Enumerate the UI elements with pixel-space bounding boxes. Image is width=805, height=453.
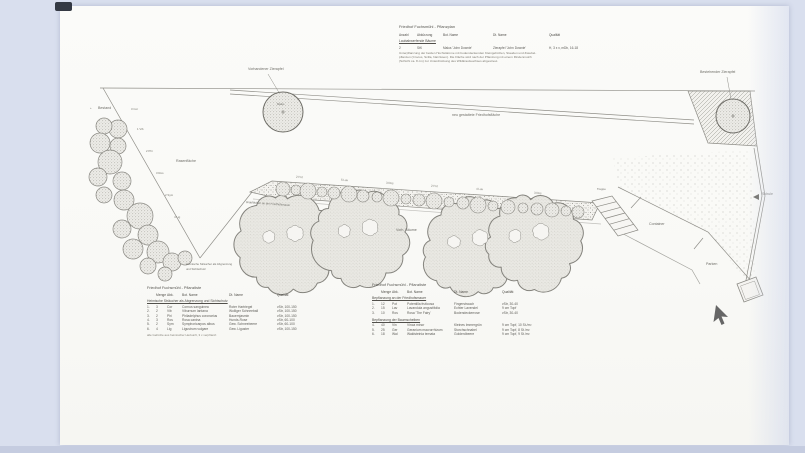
header-plant-row: 2 StK Malus 'John Downie' Zierapfel 'Joh…: [399, 46, 669, 50]
cell-qual: vStr, 30-40: [502, 311, 548, 315]
boundary-shrub-row: [89, 118, 192, 281]
cell-nr: 3.: [372, 311, 379, 315]
label-rasenflaeche: Rasenfläche: [176, 159, 196, 163]
plant-tick: 1 Vib: [137, 127, 144, 131]
plant-tick: 3 Ros: [386, 181, 394, 185]
col-dt: Dt. Name: [229, 293, 275, 297]
cell-qual: vStr, 100-150: [277, 327, 323, 331]
plant-rows: 4.40VinVinca minorKleines Immergrün9 cm …: [372, 323, 540, 336]
plant-row: 3.10RosRosa 'The Fairy'BodendeckerrosevS…: [372, 311, 540, 315]
col-anzahl: Anzahl: [399, 33, 413, 37]
zierapfel-trees: [263, 92, 750, 133]
plant-tick: 2 Phi: [146, 149, 153, 153]
plant-rows: 1.12PotPotentilla fruticosaFingerstrauch…: [372, 302, 540, 315]
col-dt: Dt. Name: [454, 290, 500, 294]
table-columns: Menge Abk. Bot. Name Dt. Name Qualität: [372, 290, 540, 294]
col-qualitaet: Qualität: [549, 33, 627, 37]
cell-bot: Malus 'John Downie': [443, 46, 489, 50]
planting-notes: Unterpflanzung der beiden Hochstämme mit…: [399, 52, 667, 64]
cell-qual: 9 cm Topf, 9 St./m²: [502, 332, 548, 336]
cell-bot: Ligustrum vulgare: [182, 327, 227, 331]
cell-dt: Golderdbeere: [454, 332, 500, 336]
col-menge: Menge: [381, 290, 390, 294]
label-container: Container: [649, 222, 665, 226]
cell-menge: 10: [381, 311, 390, 315]
section-title: Bepflanzung an der Friedhofsmauer: [372, 296, 540, 300]
label-vorhandener-zierapfel: Vorhandener Zierapfel: [248, 67, 284, 71]
plant-tick: 5 Lav: [341, 178, 348, 182]
cell-bot: Waldsteinia ternata: [407, 332, 452, 336]
plant-tick: 3 Cor: [131, 107, 138, 111]
section-title: Heimische Sträucher als Abgrenzung und S…: [147, 299, 319, 303]
slope-planting-area: [612, 150, 758, 296]
col-qual: Qualität: [277, 293, 323, 297]
image-viewer-canvas: + Bestand Rasenfläche Vorhandener Zierap…: [0, 0, 805, 453]
col-bot-name: Bot. Name: [443, 33, 489, 37]
label-treppe: Treppe: [597, 188, 606, 191]
cell-abk: Lig: [167, 327, 180, 331]
label-parken: Parken: [706, 262, 717, 266]
col-qual: Qualität: [502, 290, 548, 294]
cell-dt: Zierapfel 'John Downie': [493, 46, 545, 50]
col-dt-name: Dt. Name: [493, 33, 545, 37]
cell-menge: 18: [381, 332, 390, 336]
arrow-mark: [714, 305, 729, 325]
cell-nr: 6.: [372, 332, 379, 336]
plan-title: Friedhof Fuchsmühl - Pflanzplan: [399, 24, 669, 29]
label-vorh-baeume: Vorh. Bäume: [396, 228, 417, 232]
plant-table-left: Friedhof Fuchsmühl - Pflanzliste Menge A…: [147, 286, 319, 337]
header-section-title: Laubabwerfende Bäume: [399, 39, 669, 43]
stairs: [592, 196, 638, 236]
plant-tick: 3 Ros: [156, 171, 164, 175]
col-bot: Bot. Name: [407, 290, 452, 294]
note-line: (Schicht ca. 8 cm) zur Unterdrückung des…: [399, 60, 667, 64]
label-sichtschutz-line2: und Sichtschutz: [186, 268, 206, 271]
cell-abk: StK: [417, 46, 439, 50]
table-note: alle Gehölze aus heimischer Herkunft, 3 …: [147, 333, 319, 337]
plant-tick: 3 Ros: [534, 191, 542, 195]
col-spacer: [147, 293, 154, 297]
label-bestehender-zierapfel: Bestehender Zierapfel: [700, 70, 735, 74]
section-title: Bepflanzung der Baumscheiben: [372, 318, 540, 322]
cell-abk: Ros: [392, 311, 405, 315]
plant-rows: 1.3CorCornus sanguineaRoter HartriegelvS…: [147, 305, 319, 331]
scan-edge-shadow: [748, 6, 789, 445]
plan-header-block: Friedhof Fuchsmühl - Pflanzplan Anzahl A…: [399, 24, 669, 64]
plant-row: 6.18WalWaldsteinia ternataGolderdbeere9 …: [372, 332, 540, 336]
viewer-bottom-bar: [0, 446, 805, 453]
col-abk: Abk.: [167, 293, 180, 297]
label-neu-gestaltete-flaeche: neu gestaltete Friedhofsfläche: [452, 113, 500, 117]
plant-tick: 2 Pot: [296, 175, 303, 179]
cell-abk: Wal: [392, 332, 405, 336]
cell-nr: 2: [399, 46, 413, 50]
cell-menge: 4: [156, 327, 165, 331]
plant-table-right: Friedhof Fuchsmühl - Pflanzliste Menge A…: [372, 283, 540, 336]
label-malus: Malus: [277, 103, 284, 106]
table-title: Friedhof Fuchsmühl - Pflanzliste: [372, 283, 540, 287]
plant-row: 6.4LigLigustrum vulgareGew. LigustervStr…: [147, 327, 319, 331]
plant-tick: 4 Lig: [174, 215, 180, 219]
plant-tick: 2 Sym: [165, 193, 173, 197]
col-spacer: [372, 290, 379, 294]
survey-cross: +: [90, 106, 92, 110]
cell-qual: H, 3 x v, mDb, 16-18: [549, 46, 627, 50]
cell-dt: Bodendeckerrose: [454, 311, 500, 315]
col-menge: Menge: [156, 293, 165, 297]
cell-nr: 6.: [147, 327, 154, 331]
header-columns: Anzahl Abkürzung Bot. Name Dt. Name Qual…: [399, 33, 669, 37]
cell-dt: Gew. Liguster: [229, 327, 275, 331]
table-columns: Menge Abk. Bot. Name Dt. Name Qualität: [147, 293, 319, 297]
col-abk: Abk.: [392, 290, 405, 294]
plant-tick: 4 Lav: [476, 187, 483, 191]
cell-bot: Rosa 'The Fairy': [407, 311, 452, 315]
col-bot: Bot. Name: [182, 293, 227, 297]
table-title: Friedhof Fuchsmühl - Pflanzliste: [147, 286, 319, 290]
col-abkuerzung: Abkürzung: [417, 33, 439, 37]
site-plan-drawing: [0, 0, 805, 453]
label-sichtschutz-line1: Heimische Sträucher als Abgrenzung: [186, 263, 232, 266]
plant-tick: 2 Pot: [431, 184, 438, 188]
label-bestand: Bestand: [98, 106, 111, 110]
